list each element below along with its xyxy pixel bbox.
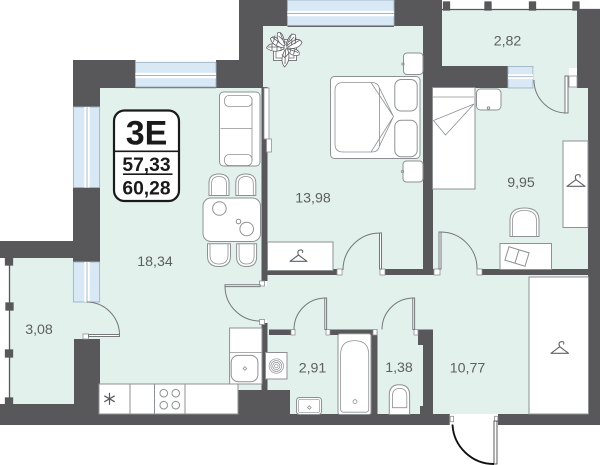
svg-text:1,38: 1,38	[385, 360, 413, 376]
svg-text:3E: 3E	[126, 114, 168, 152]
svg-text:18,34: 18,34	[137, 254, 173, 270]
svg-text:2,91: 2,91	[299, 361, 327, 377]
svg-text:60,28: 60,28	[122, 179, 171, 200]
svg-text:3,08: 3,08	[25, 322, 53, 338]
svg-text:9,95: 9,95	[507, 175, 535, 191]
svg-text:2,82: 2,82	[494, 34, 522, 50]
svg-text:13,98: 13,98	[295, 191, 331, 207]
svg-text:57,33: 57,33	[122, 155, 171, 176]
svg-text:10,77: 10,77	[450, 361, 486, 377]
